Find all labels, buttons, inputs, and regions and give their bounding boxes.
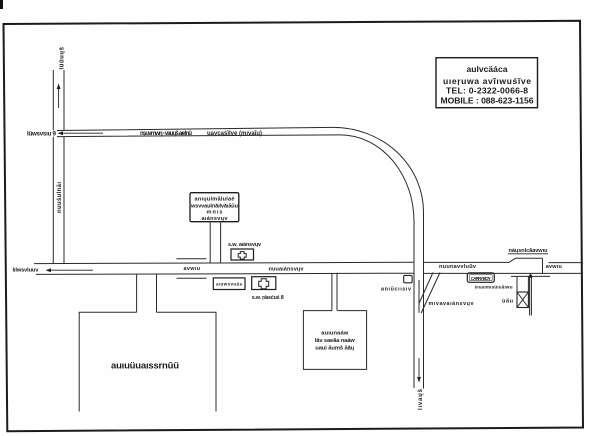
svg-text:aulvcäáca: aulvcäáca <box>467 64 508 74</box>
svg-text:śıuaımısúıuăıwu: śıuaımısúıuăıwu <box>475 285 513 290</box>
svg-text:nuuśulnăı: nuuśulnăı <box>57 182 63 213</box>
svg-text:avwıu: avwıu <box>546 264 562 270</box>
svg-text:aıuwsvuās: aıuwsvuās <box>216 282 242 287</box>
svg-text:auıuüuaıssrnūü: auıuüuaıssrnūü <box>111 361 179 372</box>
svg-text:lıvaųš: lıvaųš <box>418 388 424 410</box>
svg-text:ùäu: ùäu <box>502 299 514 305</box>
svg-text:s.w. ŗáısćuś 8: s.w. ŗáısćuś 8 <box>252 295 284 301</box>
svg-text:auıunaáw: auıunaáw <box>321 331 348 337</box>
svg-text:lāv saeăa naáw: lāv saeăa naáw <box>315 338 355 344</box>
svg-text:nşuvmwŋ - vauųš aıelnü: nşuvmwŋ - vauųš aıelnü <box>140 131 192 137</box>
svg-text:wsvvaulnăılvăıāūu: wsvvaulnăılvăıāūu <box>190 203 239 209</box>
svg-text:TEL: 0-2322-0066-8: TEL: 0-2322-0066-8 <box>446 86 528 96</box>
svg-text:mnıs: mnıs <box>207 210 223 216</box>
svg-text:lüūuųš: lüūuųš <box>60 46 66 69</box>
svg-text:nuunavvluŭv: nuunavvluŭv <box>439 264 477 270</box>
svg-text:aıánsvųv: aıánsvųv <box>202 216 229 222</box>
svg-text:lılwsvluuv: lılwsvluuv <box>13 268 40 274</box>
svg-text:CARRY BOY: CARRY BOY <box>471 276 491 281</box>
svg-text:avwıu: avwıu <box>184 266 201 272</box>
svg-text:MOBILE : 088-623-1156: MOBILE : 088-623-1156 <box>441 95 534 105</box>
svg-text:lūwsvsıu 9: lūwsvsıu 9 <box>27 130 57 137</box>
svg-text:uavcaśïlve (mıvaĩu): uavcaśïlve (mıvaĩu) <box>207 131 262 137</box>
svg-text:náųsnlcăavwıu: náųsnlcăavwıu <box>509 248 549 254</box>
svg-text:s.w. aıánsvųv: s.w. aıánsvųv <box>228 242 261 248</box>
svg-text:uıeŗuwa avĩıwuśĩve: uıeŗuwa avĩıwuśĩve <box>443 76 531 86</box>
svg-text:uaui āumš āăų: uaui āumš āăų <box>315 346 354 352</box>
svg-text:nuuaıánsvųv: nuuaıánsvųv <box>269 266 305 272</box>
svg-text:anıųulmālulaė: anıųulmālulaė <box>195 196 235 202</box>
svg-text:mıvavaıánsvųv: mıvavaıánsvųv <box>429 301 474 307</box>
svg-text:anıūcıısıv: anıūcıısıv <box>381 287 411 293</box>
